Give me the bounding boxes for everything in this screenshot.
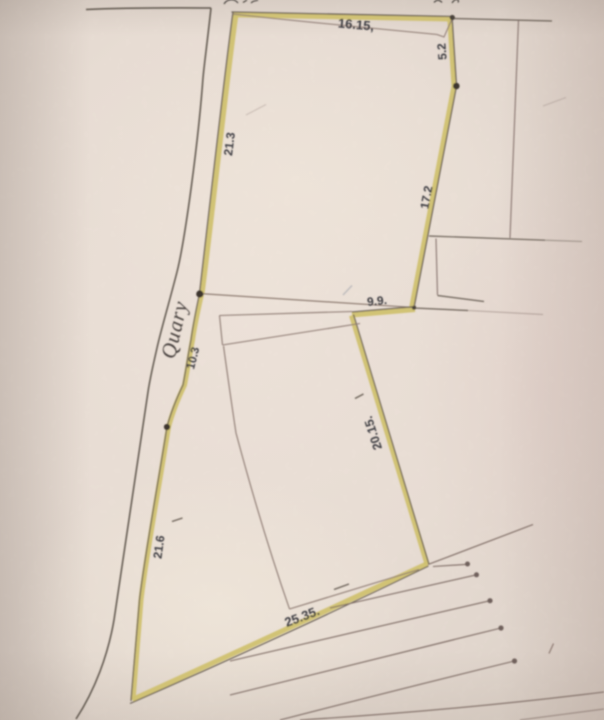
svg-text:9.9.: 9.9. bbox=[366, 293, 387, 309]
svg-text:5.2: 5.2 bbox=[434, 42, 449, 60]
svg-text:16.15,: 16.15, bbox=[337, 15, 374, 33]
svg-text:21.3: 21.3 bbox=[221, 131, 238, 156]
